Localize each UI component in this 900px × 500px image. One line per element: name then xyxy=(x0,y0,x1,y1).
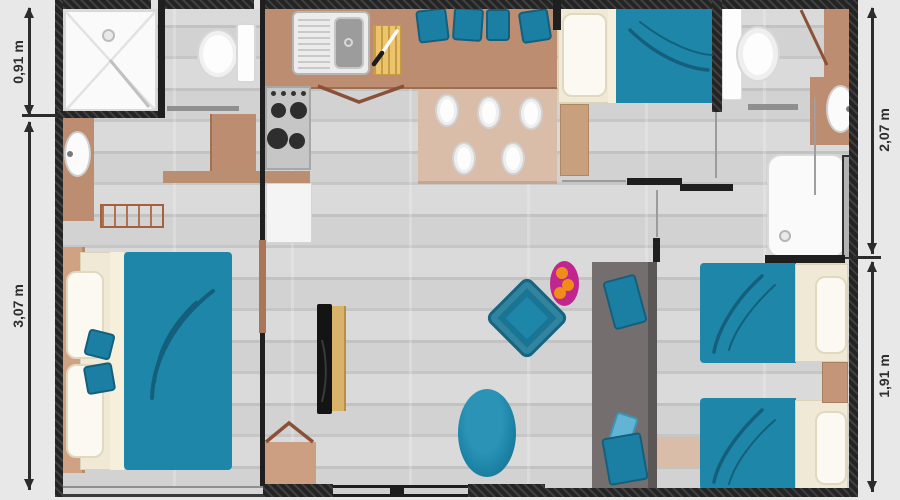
wall-segment xyxy=(545,488,849,497)
stove-knob-icon xyxy=(281,91,286,96)
tv-stand-icon xyxy=(331,306,346,411)
wall-segment xyxy=(55,111,158,118)
arrow-up-icon xyxy=(867,7,877,18)
dimension-label: 1,91 m xyxy=(876,354,892,398)
shower-drain-icon xyxy=(102,29,115,42)
counter-icon xyxy=(824,8,850,78)
toilet-icon xyxy=(197,29,239,79)
fruit-icon xyxy=(556,267,568,279)
dimension-line xyxy=(28,8,31,116)
duvet-icon xyxy=(124,252,232,470)
dimension-label: 2,07 m xyxy=(876,108,892,152)
dimension-label: 0,91 m xyxy=(10,40,26,84)
burner-icon xyxy=(271,103,286,118)
plate-icon xyxy=(435,94,459,127)
wall-segment xyxy=(263,484,333,497)
sink-drain-icon xyxy=(344,38,353,47)
door-handle-icon xyxy=(390,488,404,494)
shower-tray-icon xyxy=(64,10,157,111)
throw-cushion-icon xyxy=(83,362,117,396)
wall-segment xyxy=(55,0,63,497)
toilet-icon xyxy=(736,26,780,82)
wall-segment xyxy=(712,0,722,112)
wall-segment xyxy=(260,333,265,490)
wall-segment xyxy=(653,238,660,262)
counter-shelf-icon xyxy=(163,171,310,183)
wall-segment xyxy=(627,178,682,185)
towel-rail-icon xyxy=(100,204,164,228)
plate-icon xyxy=(452,142,476,175)
stove-icon xyxy=(265,86,311,170)
plate-icon xyxy=(519,97,543,130)
bed-sheet-icon xyxy=(110,252,124,470)
seat-cushion-icon xyxy=(486,9,510,41)
dresser-icon xyxy=(560,104,589,176)
arrow-down-icon xyxy=(24,479,34,490)
floor-plan: 0,91 m 3,07 m 2,07 m 1,91 m xyxy=(0,0,900,500)
dimension-tick xyxy=(853,256,881,259)
round-pouf-icon xyxy=(458,389,516,477)
dimension-line xyxy=(871,8,874,254)
stove-knob-icon xyxy=(301,91,306,96)
arrow-up-icon xyxy=(24,121,34,132)
wall-segment xyxy=(55,0,858,9)
wall-segment xyxy=(158,0,165,118)
wall-segment xyxy=(553,0,561,30)
wall-segment xyxy=(468,484,545,497)
dimension-line xyxy=(871,262,874,492)
arrow-up-icon xyxy=(24,7,34,18)
door-leaf-icon xyxy=(259,240,266,333)
faucet-icon xyxy=(67,151,73,157)
stove-knob-icon xyxy=(271,91,276,96)
shelf-icon xyxy=(748,104,798,110)
plate-icon xyxy=(501,142,525,175)
toilet-cistern-icon xyxy=(236,23,256,83)
burner-icon xyxy=(290,102,307,119)
wall-segment xyxy=(680,184,733,191)
nightstand-icon xyxy=(822,362,848,403)
throw-cushion-icon xyxy=(601,432,649,486)
burner-icon xyxy=(267,128,288,149)
shower-tray-icon xyxy=(767,154,846,258)
plate-icon xyxy=(477,96,501,129)
pillow-icon xyxy=(815,411,847,485)
sink-drainer-icon xyxy=(298,17,330,69)
single-bed-icon xyxy=(700,263,796,363)
dimension-line xyxy=(28,122,31,490)
seat-cushion-icon xyxy=(415,7,450,44)
stove-knob-icon xyxy=(291,91,296,96)
wall-segment xyxy=(765,255,845,263)
tv-icon xyxy=(317,304,332,414)
arrow-down-icon xyxy=(867,481,877,492)
rug-icon xyxy=(657,437,701,468)
window-icon xyxy=(63,486,263,497)
arrow-up-icon xyxy=(867,261,877,272)
seat-cushion-icon xyxy=(452,7,484,42)
wall-segment xyxy=(849,0,858,497)
cabinet-icon xyxy=(263,442,316,487)
arrow-down-icon xyxy=(867,243,877,254)
seat-cushion-icon xyxy=(518,8,553,44)
shower-drain-icon xyxy=(779,230,791,242)
shelf-icon xyxy=(167,106,239,111)
fruit-icon xyxy=(554,287,566,299)
fridge-icon xyxy=(266,183,312,243)
pillow-icon xyxy=(815,276,847,354)
single-bed-icon xyxy=(700,398,796,490)
pillow-icon xyxy=(562,13,607,97)
burner-icon xyxy=(289,133,305,149)
wall-segment xyxy=(260,0,265,240)
dimension-tick xyxy=(22,114,58,117)
cutting-board-icon xyxy=(373,25,401,75)
duvet-icon xyxy=(616,8,713,103)
dimension-label: 3,07 m xyxy=(10,284,26,328)
